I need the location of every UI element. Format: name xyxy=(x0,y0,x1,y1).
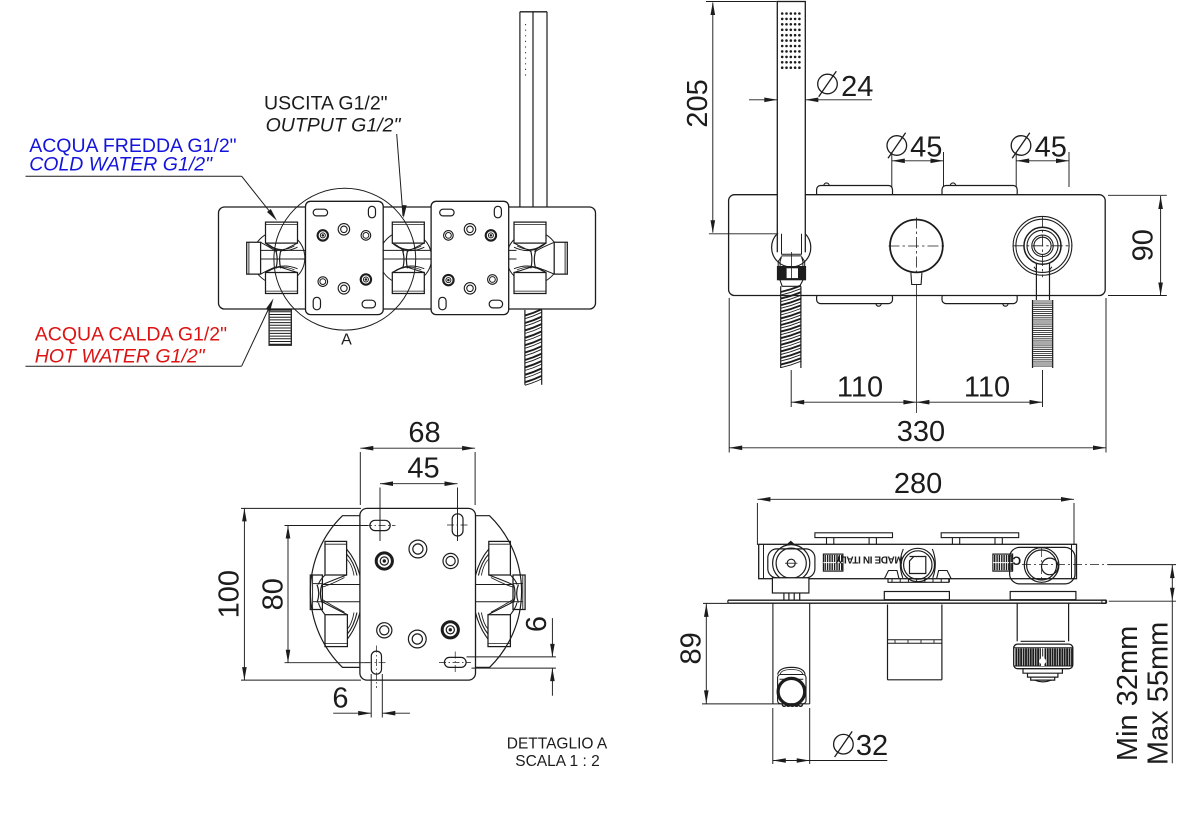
svg-text:80: 80 xyxy=(257,578,289,610)
svg-text:110: 110 xyxy=(964,372,1010,404)
svg-text:OUTPUT G1/2": OUTPUT G1/2" xyxy=(266,115,402,137)
svg-text:COLD WATER G1/2": COLD WATER G1/2" xyxy=(29,154,213,176)
svg-text:330: 330 xyxy=(897,416,945,448)
svg-text:DETTAGLIO A: DETTAGLIO A xyxy=(507,736,608,753)
svg-text:C: C xyxy=(1012,554,1021,568)
svg-text:HOT WATER G1/2": HOT WATER G1/2" xyxy=(35,346,206,368)
svg-text:89: 89 xyxy=(676,632,708,664)
svg-text:100: 100 xyxy=(214,570,246,618)
svg-text:Max 55mm: Max 55mm xyxy=(1143,622,1175,765)
svg-text:90: 90 xyxy=(1128,229,1160,261)
svg-text:45: 45 xyxy=(910,131,942,163)
svg-text:ACQUA CALDA G1/2": ACQUA CALDA G1/2" xyxy=(35,323,227,345)
svg-text:MADE IN ITALY: MADE IN ITALY xyxy=(835,554,903,565)
svg-text:45: 45 xyxy=(407,453,439,485)
svg-text:6: 6 xyxy=(332,683,348,715)
svg-text:205: 205 xyxy=(682,79,714,127)
svg-text:SCALA 1 : 2: SCALA 1 : 2 xyxy=(515,753,599,770)
svg-text:45: 45 xyxy=(1035,131,1067,163)
svg-text:110: 110 xyxy=(837,372,883,404)
svg-text:6: 6 xyxy=(521,616,553,632)
svg-text:24: 24 xyxy=(841,71,873,103)
svg-text:68: 68 xyxy=(408,417,440,449)
svg-text:280: 280 xyxy=(894,468,942,500)
svg-text:Min 32mm: Min 32mm xyxy=(1112,626,1144,761)
svg-text:A: A xyxy=(341,332,352,349)
svg-text:USCITA G1/2": USCITA G1/2" xyxy=(264,93,388,115)
svg-text:32: 32 xyxy=(856,730,888,762)
